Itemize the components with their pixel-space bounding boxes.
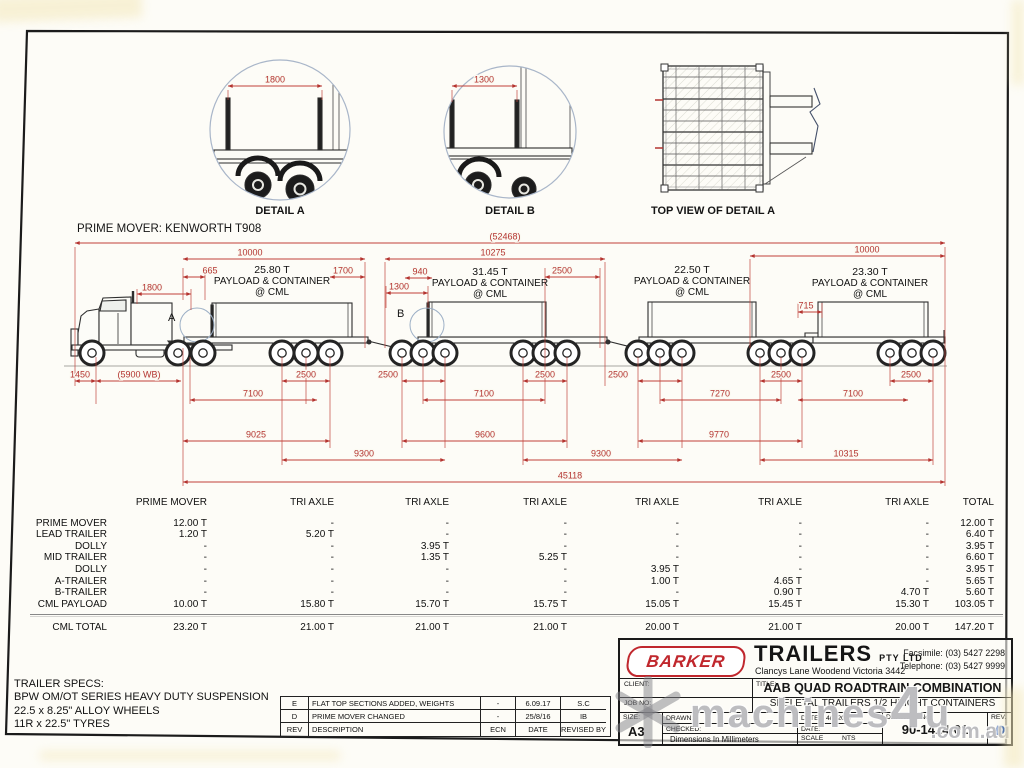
table-cell: 21.00 T [207, 622, 334, 634]
revision-cell: DATE [516, 723, 561, 736]
table-row: PRIME MOVER12.00 T------12.00 T [30, 518, 994, 530]
wheel-hub [88, 349, 96, 357]
table-cell: - [207, 518, 334, 530]
row-label: LEAD TRAILER [30, 529, 107, 541]
facsimile: Facsimile: (03) 5427 2298 [903, 648, 1005, 658]
dim-label: 2500 [901, 370, 921, 380]
table-cell: 15.05 T [567, 599, 679, 611]
table-cell: - [449, 518, 567, 530]
payload-line3: @ CML [197, 287, 347, 298]
dim-label: 9600 [475, 430, 495, 440]
dim-label: 2500 [608, 370, 628, 380]
table-row: DOLLY--3.95 T----3.95 T [30, 541, 994, 553]
table-cell: - [567, 587, 679, 599]
revision-row: DPRIME MOVER CHANGED-25/8/16IB [281, 710, 610, 723]
table-cell: - [679, 529, 802, 541]
detail-b-label: DETAIL B [460, 205, 560, 217]
barker-logo-text: BARKER [645, 652, 727, 672]
table-cell: - [334, 518, 449, 530]
table-cell: 3.95 T [334, 541, 449, 553]
wheel-hub [174, 349, 182, 357]
table-cell: - [207, 564, 334, 576]
payload-weight: 22.50 T [617, 265, 767, 276]
table-cell: - [449, 541, 567, 553]
table-cell: 12.00 T [107, 518, 207, 530]
wheel-hub [929, 349, 937, 357]
payload-note: 23.30 T PAYLOAD & CONTAINER @ CML [795, 267, 945, 300]
revision-cell: FLAT TOP SECTIONS ADDED, WEIGHTS ADJUSTE… [309, 697, 481, 710]
top-view-label: TOP VIEW OF DETAIL A [633, 205, 793, 217]
revision-cell: 25/8/16 [516, 710, 561, 723]
table-cell: - [207, 587, 334, 599]
table-cell: TRI AXLE [449, 497, 567, 509]
table-cell: - [802, 552, 929, 564]
marker-a: A [168, 312, 175, 324]
wheel-hub [199, 349, 207, 357]
wheel-hub [756, 349, 764, 357]
payload-note: 31.45 T PAYLOAD & CONTAINER @ CML [415, 267, 565, 300]
dim-label: 1300 [389, 282, 409, 292]
table-cell: - [567, 552, 679, 564]
table-cell: - [802, 529, 929, 541]
table-cell: - [679, 541, 802, 553]
drawing-number: 90-1414-01 [886, 722, 984, 737]
table-cell: 15.70 T [334, 599, 449, 611]
revision-cell: PRIME MOVER CHANGED [309, 710, 481, 723]
table-row: CML TOTAL23.20 T21.00 T21.00 T21.00 T20.… [30, 622, 994, 634]
table-cell: - [207, 541, 334, 553]
dim-label: 9770 [709, 430, 729, 440]
row-label: DOLLY [30, 564, 107, 576]
revision-cell: 6.09.17 [516, 697, 561, 710]
revision-cell: ECN [481, 723, 516, 736]
dim-label: 715 [798, 301, 813, 311]
table-total-divider [30, 614, 1003, 615]
dim-label: 2500 [771, 370, 791, 380]
wheel-hub [441, 349, 449, 357]
payload-line2: PAYLOAD & CONTAINER [617, 276, 767, 287]
table-cell: 15.75 T [449, 599, 567, 611]
table-row: A-TRAILER----1.00 T4.65 T-5.65 T [30, 576, 994, 588]
table-cell: - [802, 541, 929, 553]
payload-weight: 23.30 T [795, 267, 945, 278]
wheel-hub [326, 349, 334, 357]
date-value: 4/7/2017 [826, 715, 852, 722]
table-cell: - [107, 564, 207, 576]
payload-line2: PAYLOAD & CONTAINER [415, 278, 565, 289]
table-row: PRIME MOVERTRI AXLETRI AXLETRI AXLETRI A… [30, 497, 994, 509]
date-label: DATE: [801, 715, 821, 722]
revision-cell: S.C [561, 697, 606, 710]
table-cell: - [449, 576, 567, 588]
top-view-art [655, 64, 820, 192]
table-cell: TRI AXLE [679, 497, 802, 509]
table-cell: - [107, 541, 207, 553]
table-cell: 5.65 T [929, 576, 994, 588]
table-cell: - [334, 529, 449, 541]
table-cell: - [107, 552, 207, 564]
payload-weight: 25.80 T [197, 265, 347, 276]
table-cell: 15.30 T [802, 599, 929, 611]
specs-line: BPW OM/OT SERIES HEAVY DUTY SUSPENSION [14, 691, 269, 704]
table-cell: 21.00 T [679, 622, 802, 634]
table-cell: 3.95 T [929, 564, 994, 576]
specs-line: 22.5 x 8.25" ALLOY WHEELS [14, 705, 269, 718]
drawing-no-label: DRAWING No: [886, 714, 931, 721]
dim-label: 2500 [378, 370, 398, 380]
dim-label: 9300 [354, 449, 374, 459]
table-cell: 4.65 T [679, 576, 802, 588]
table-cell: 21.00 T [449, 622, 567, 634]
scale-value: NTS [842, 735, 856, 742]
table-cell: 3.95 T [567, 564, 679, 576]
payload-weight: 31.45 T [415, 267, 565, 278]
dim-label: 10275 [480, 248, 505, 258]
table-cell: 15.80 T [207, 599, 334, 611]
dim-label: 1800 [265, 75, 285, 85]
dim-label: 2500 [296, 370, 316, 380]
dim-label: (52468) [489, 232, 520, 242]
table-cell: TOTAL [929, 497, 994, 509]
dim-label: 1300 [474, 75, 494, 85]
table-cell: - [679, 518, 802, 530]
dim-label: 7100 [474, 389, 494, 399]
rev-stamp: D [995, 722, 1005, 738]
revision-cell: DESCRIPTION [309, 723, 481, 736]
row-label: PRIME MOVER [30, 518, 107, 530]
specs-title: TRAILER SPECS: [14, 678, 269, 691]
wheel-hub [908, 349, 916, 357]
drawing-subtitle: SKELETAL TRAILERS 1/2 HEIGHT CONTAINERS [760, 698, 1005, 709]
table-cell: 1.20 T [107, 529, 207, 541]
revision-cell: IB [561, 710, 606, 723]
dim-label: 10000 [854, 245, 879, 255]
scale-label: SCALE [801, 735, 823, 742]
table-cell: - [449, 529, 567, 541]
drawn-value: JD [732, 715, 740, 722]
table-cell: 20.00 T [567, 622, 679, 634]
table-cell: 5.60 T [929, 587, 994, 599]
wheel-hub [678, 349, 686, 357]
revision-table: EFLAT TOP SECTIONS ADDED, WEIGHTS ADJUST… [280, 696, 611, 737]
scanned-sheet: (52468)100001027510000665170094025001800… [0, 0, 1024, 768]
table-cell: 6.60 T [929, 552, 994, 564]
wheel-hub [302, 349, 310, 357]
table-cell: - [107, 576, 207, 588]
asterisk-icon [612, 676, 684, 748]
trailer-specs: TRAILER SPECS: BPW OM/OT SERIES HEAVY DU… [14, 678, 269, 732]
table-cell: - [567, 518, 679, 530]
table-row: LEAD TRAILER1.20 T5.20 T-----6.40 T [30, 529, 994, 541]
date2-label: DATE: [801, 726, 821, 733]
wheel-hub [886, 349, 894, 357]
table-cell: - [334, 564, 449, 576]
table-cell: - [802, 564, 929, 576]
table-cell: - [802, 576, 929, 588]
table-cell: 0.90 T [679, 587, 802, 599]
barker-logo: BARKER [625, 646, 747, 677]
table-cell: - [107, 587, 207, 599]
wheel-hub [519, 349, 527, 357]
table-cell: - [334, 576, 449, 588]
company-name: TRAILERS PTY LTD [754, 641, 923, 667]
table-cell: - [567, 529, 679, 541]
table-cell: 15.45 T [679, 599, 802, 611]
table-row: B-TRAILER-----0.90 T4.70 T5.60 T [30, 587, 994, 599]
revision-cell: D [281, 710, 309, 723]
table-cell: - [567, 541, 679, 553]
detail-a-label: DETAIL A [230, 205, 330, 217]
wheel-hub [278, 349, 286, 357]
dim-label: 7100 [843, 389, 863, 399]
dim-label: 2500 [535, 370, 555, 380]
revision-cell: E [281, 697, 309, 710]
table-cell: 5.20 T [207, 529, 334, 541]
row-label: DOLLY [30, 541, 107, 553]
wheel-hub [656, 349, 664, 357]
table-cell: - [449, 587, 567, 599]
revision-cell: REV [281, 723, 309, 736]
table-cell: - [334, 587, 449, 599]
table-cell: - [207, 576, 334, 588]
dim-label: 1800 [142, 283, 162, 293]
table-cell: 147.20 T [929, 622, 994, 634]
dim-label: 45118 [558, 471, 582, 481]
row-label: CML TOTAL [30, 622, 107, 634]
table-cell: 20.00 T [802, 622, 929, 634]
table-cell: TRI AXLE [207, 497, 334, 509]
telephone: Telephone: (03) 5427 9999 [900, 661, 1005, 671]
company-address: Clancys Lane Woodend Victoria 3442 [755, 666, 905, 676]
drawing-title: AAB QUAD ROADTRAIN COMBINATION [760, 681, 1005, 695]
payload-line2: PAYLOAD & CONTAINER [795, 278, 945, 289]
revision-cell: REVISED BY [561, 723, 606, 736]
rev-label: REV. [991, 714, 1006, 721]
revision-row: EFLAT TOP SECTIONS ADDED, WEIGHTS ADJUST… [281, 697, 610, 710]
wheel-hub [634, 349, 642, 357]
table-cell: 1.35 T [334, 552, 449, 564]
table-cell: TRI AXLE [334, 497, 449, 509]
wheel-hub [777, 349, 785, 357]
dim-label: 7100 [243, 389, 263, 399]
dim-label: 1450 [70, 370, 90, 380]
detail-b-art [444, 62, 576, 201]
table-row: DOLLY----3.95 T--3.95 T [30, 564, 994, 576]
marker-b: B [397, 308, 404, 320]
payload-line3: @ CML [795, 289, 945, 300]
payload-note: 22.50 T PAYLOAD & CONTAINER @ CML [617, 265, 767, 298]
table-cell: 21.00 T [334, 622, 449, 634]
row-label [30, 497, 107, 509]
dim-label: 10315 [833, 449, 858, 459]
payload-line3: @ CML [415, 289, 565, 300]
revision-row: REVDESCRIPTIONECNDATEREVISED BY [281, 723, 610, 736]
row-label: CML PAYLOAD [30, 599, 107, 611]
table-cell: 3.95 T [929, 541, 994, 553]
table-cell: TRI AXLE [802, 497, 929, 509]
prime-mover-label: PRIME MOVER: KENWORTH T908 [77, 223, 261, 235]
wheel-hub [563, 349, 571, 357]
table-cell: 5.25 T [449, 552, 567, 564]
payload-line3: @ CML [617, 287, 767, 298]
wheel-hub [798, 349, 806, 357]
table-row: CML PAYLOAD10.00 T15.80 T15.70 T15.75 T1… [30, 599, 994, 611]
table-cell: 6.40 T [929, 529, 994, 541]
revision-cell: - [481, 710, 516, 723]
table-cell: 23.20 T [107, 622, 207, 634]
table-cell: 4.70 T [802, 587, 929, 599]
dim-label: 9025 [246, 430, 266, 440]
row-label: A-TRAILER [30, 576, 107, 588]
dim-label: (5900 WB) [117, 370, 160, 380]
row-label: B-TRAILER [30, 587, 107, 599]
table-cell: PRIME MOVER [107, 497, 207, 509]
table-cell: - [679, 552, 802, 564]
table-cell: - [802, 518, 929, 530]
row-label: MID TRAILER [30, 552, 107, 564]
table-row: MID TRAILER--1.35 T5.25 T---6.60 T [30, 552, 994, 564]
payload-note: 25.80 T PAYLOAD & CONTAINER @ CML [197, 265, 347, 298]
payload-line2: PAYLOAD & CONTAINER [197, 276, 347, 287]
wheel-hub [398, 349, 406, 357]
table-cell: 10.00 T [107, 599, 207, 611]
dim-label: 10000 [237, 248, 262, 258]
table-cell: 12.00 T [929, 518, 994, 530]
table-cell: 103.05 T [929, 599, 994, 611]
table-cell: TRI AXLE [567, 497, 679, 509]
table-cell: 1.00 T [567, 576, 679, 588]
table-cell: - [207, 552, 334, 564]
table-cell: - [449, 564, 567, 576]
table-cell: - [679, 564, 802, 576]
dim-label: 7270 [710, 389, 730, 399]
dim-label: 9300 [591, 449, 611, 459]
revision-cell: - [481, 697, 516, 710]
wheel-hub [419, 349, 427, 357]
specs-line: 11R x 22.5" TYRES [14, 718, 269, 731]
